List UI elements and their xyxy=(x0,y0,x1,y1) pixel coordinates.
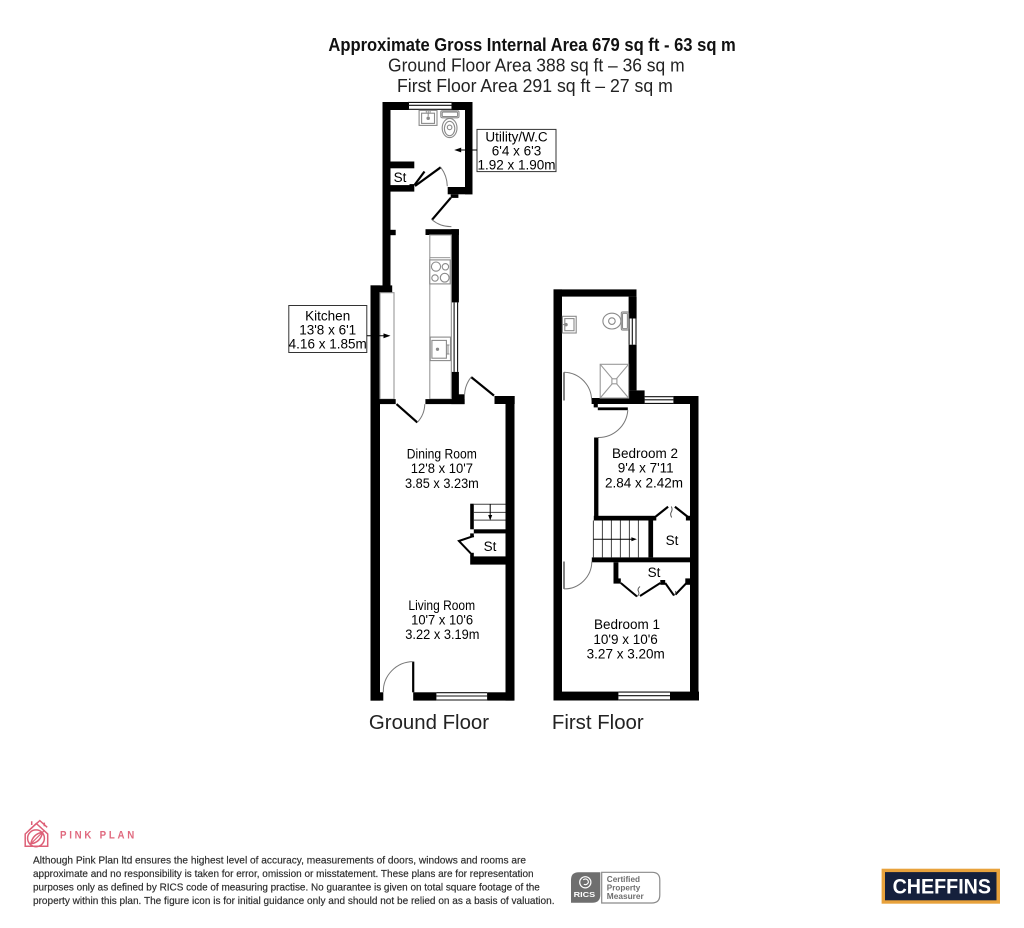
svg-text:CHEFFINS: CHEFFINS xyxy=(893,876,991,899)
svg-text:Although Pink Plan ltd ensures: Although Pink Plan ltd ensures the highe… xyxy=(33,856,526,867)
svg-text:10'7 x 10'6: 10'7 x 10'6 xyxy=(411,612,473,627)
svg-text:3.27 x 3.20m: 3.27 x 3.20m xyxy=(587,647,665,662)
svg-text:Living Room: Living Room xyxy=(408,598,475,613)
svg-text:Utility/W.C: Utility/W.C xyxy=(485,130,547,145)
svg-text:1.92 x 1.90m: 1.92 x 1.90m xyxy=(477,158,555,173)
svg-text:6'4 x 6'3: 6'4 x 6'3 xyxy=(492,144,541,159)
svg-text:purposes only as defined by RI: purposes only as defined by RICS code of… xyxy=(33,883,540,894)
svg-text:Approximate Gross Internal Are: Approximate Gross Internal Area 679 sq f… xyxy=(328,35,735,55)
svg-text:Kitchen: Kitchen xyxy=(305,309,350,324)
svg-text:10'9 x 10'6: 10'9 x 10'6 xyxy=(593,632,657,647)
svg-text:St: St xyxy=(394,170,407,185)
svg-text:12'8 x 10'7: 12'8 x 10'7 xyxy=(411,461,473,476)
svg-text:3.85 x 3.23m: 3.85 x 3.23m xyxy=(405,476,479,491)
svg-text:3.22 x 3.19m: 3.22 x 3.19m xyxy=(405,627,479,642)
svg-text:2.84 x 2.42m: 2.84 x 2.42m xyxy=(605,476,683,491)
svg-text:13'8 x 6'1: 13'8 x 6'1 xyxy=(299,323,356,338)
svg-text:PINK PLAN: PINK PLAN xyxy=(60,830,137,842)
svg-text:Ground Floor: Ground Floor xyxy=(369,712,489,734)
svg-text:Bedroom 1: Bedroom 1 xyxy=(594,617,660,632)
svg-text:Ground Floor Area 388 sq ft –: Ground Floor Area 388 sq ft – 36 sq m xyxy=(388,56,685,76)
svg-text:4.16 x 1.85m: 4.16 x 1.85m xyxy=(289,337,367,352)
svg-text:approximate and no responsibil: approximate and no responsibility is tak… xyxy=(33,869,534,880)
svg-text:9'4 x 7'11: 9'4 x 7'11 xyxy=(618,461,674,476)
svg-text:St: St xyxy=(666,533,679,548)
svg-text:Dining Room: Dining Room xyxy=(407,447,477,462)
svg-text:First Floor Area 291 sq ft – 2: First Floor Area 291 sq ft – 27 sq m xyxy=(397,76,673,96)
svg-text:Measurer: Measurer xyxy=(607,891,645,901)
svg-text:Bedroom 2: Bedroom 2 xyxy=(612,446,678,461)
svg-text:St: St xyxy=(484,539,497,554)
svg-text:RICS: RICS xyxy=(574,890,596,899)
svg-text:St: St xyxy=(648,565,661,580)
svg-text:property within this plan. The: property within this plan. The figure ic… xyxy=(33,896,555,907)
svg-text:First Floor: First Floor xyxy=(552,712,644,734)
